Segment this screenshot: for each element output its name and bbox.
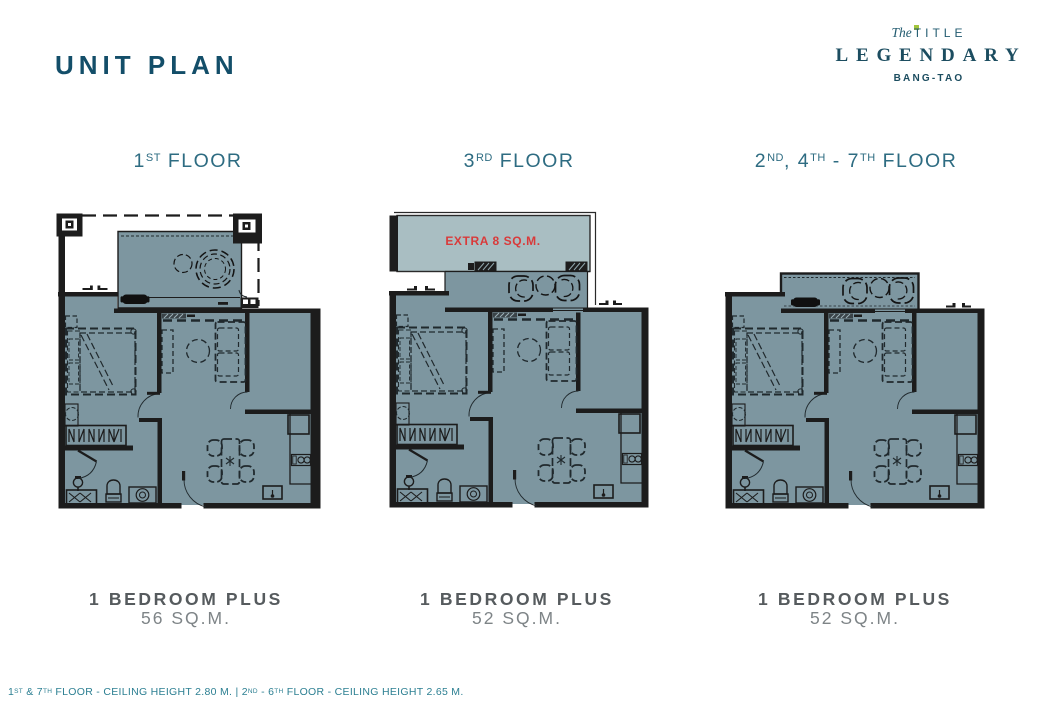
svg-text:EXTRA 8 SQ.M.: EXTRA 8 SQ.M. [445, 234, 540, 248]
